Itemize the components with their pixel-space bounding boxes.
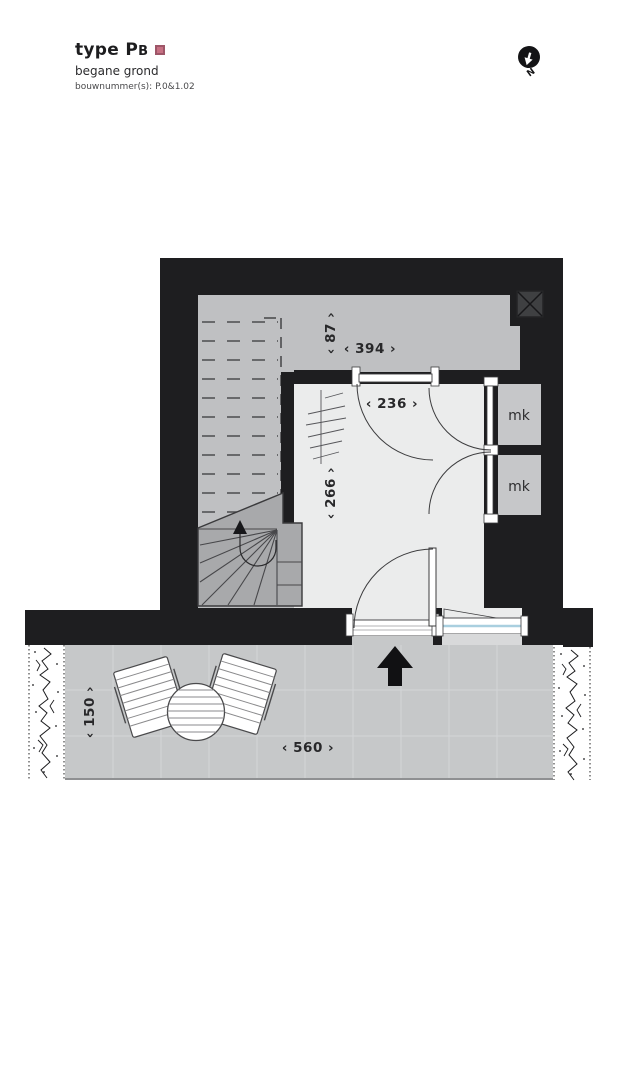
floor-name: begane grond: [75, 64, 195, 78]
shaft: [510, 258, 563, 326]
mk-label-bottom: mk: [508, 479, 531, 495]
entrance-door-leaf: [429, 548, 436, 626]
plan-type-title: type PB: [75, 40, 148, 60]
floorplan-drawing: N: [0, 0, 619, 1092]
dim-terrace-width: ‹ 560 ›: [282, 740, 334, 756]
mk-door-bottom: [487, 455, 493, 514]
north-label: N: [525, 67, 537, 80]
dim-hall-width: ‹ 236 ›: [366, 396, 418, 412]
type-color-swatch-icon: [155, 45, 165, 55]
floorplan-page: { "header": { "title_main": "type P", "t…: [0, 0, 619, 1092]
build-numbers: bouwnummer(s): P.0&1.02: [75, 82, 195, 92]
hedge-left: [28, 645, 65, 780]
dim-upper-width: ‹ 394 ›: [344, 341, 396, 357]
dim-upper-depth: ‹ 87 ›: [323, 312, 339, 354]
dim-hall-depth: ‹ 266 ›: [323, 467, 339, 519]
hedge-right: [553, 647, 592, 780]
window: [436, 608, 528, 645]
mk-door-top: [487, 386, 493, 445]
north-compass-icon: N: [513, 43, 545, 80]
drawing-header: type PB begane grond bouwnummer(s): P.0&…: [75, 40, 195, 92]
garden-wall-left: [25, 610, 160, 645]
garden-wall-right: [563, 608, 593, 647]
mk-label-top: mk: [508, 408, 531, 424]
terrace-table: [168, 684, 225, 741]
dim-terrace-depth: ‹ 150 ›: [82, 686, 98, 738]
